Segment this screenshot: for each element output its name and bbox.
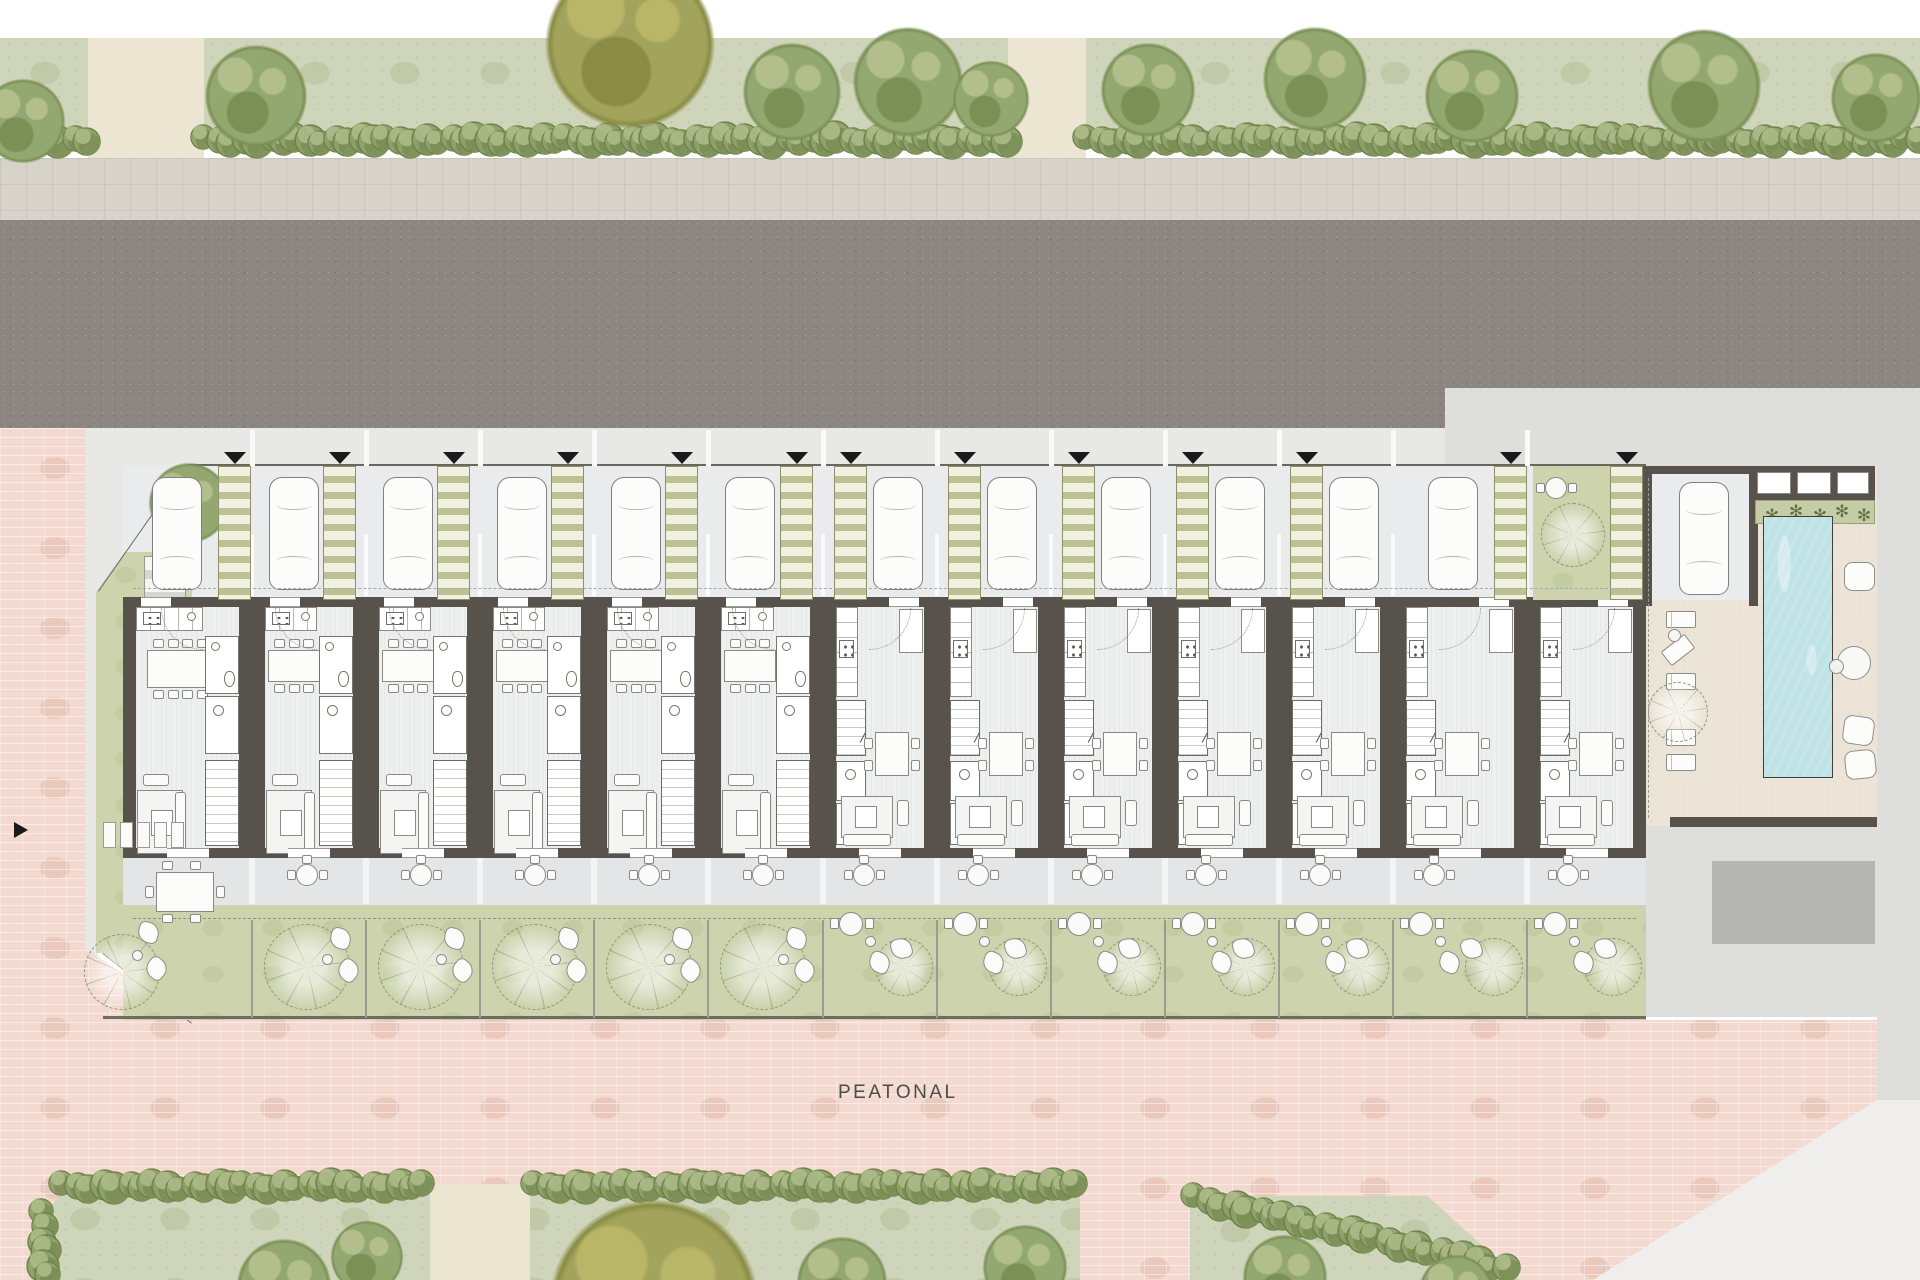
street-tree: [1830, 52, 1920, 144]
armchair: [1353, 800, 1365, 826]
sofa: [843, 834, 891, 846]
sofa: [760, 792, 771, 852]
entry-ladder: [551, 466, 584, 600]
ottoman: [664, 954, 675, 965]
chair: [433, 870, 442, 880]
dining-table: [1579, 732, 1613, 776]
sofa: [304, 792, 315, 852]
stairs-diagonal: [1564, 700, 1570, 743]
bistro-table: [1309, 864, 1331, 886]
stepping-stone: [154, 822, 167, 848]
chair: [153, 639, 164, 648]
chair: [645, 684, 656, 693]
car-rear-window: [618, 556, 654, 566]
chair: [1058, 918, 1067, 929]
ottoman: [1321, 936, 1332, 947]
bay-post: [706, 534, 710, 596]
fridge: [1489, 609, 1513, 653]
chair: [759, 684, 770, 693]
chair: [1093, 918, 1102, 929]
ottoman: [436, 954, 447, 965]
stepping-stone: [171, 822, 184, 848]
shower-room: [1406, 761, 1436, 801]
shower-head: [1549, 769, 1560, 780]
front-window: [1117, 597, 1147, 607]
chair: [1429, 855, 1439, 864]
pool-tree: [1648, 682, 1708, 742]
chair: [730, 684, 741, 693]
entry-marker: [329, 452, 351, 464]
entry-ladder: [1062, 466, 1095, 600]
garden-divider: [1392, 920, 1394, 1018]
garden-divider: [365, 920, 367, 1018]
skylight: [1837, 472, 1869, 494]
bathroom: [661, 636, 695, 694]
shower-head: [959, 769, 970, 780]
chair: [1536, 483, 1545, 493]
stairs-diagonal: [1088, 700, 1094, 743]
street-tree: [1100, 42, 1196, 138]
lounge-pillow: [1844, 748, 1878, 780]
chair: [644, 855, 654, 864]
chair: [274, 639, 285, 648]
chair: [190, 861, 201, 870]
sofa: [532, 792, 543, 852]
entry-marker: [671, 452, 693, 464]
toilet: [452, 671, 463, 687]
chair: [416, 855, 426, 864]
car-rear-window: [732, 556, 768, 566]
chair: [1481, 760, 1490, 771]
patio-divider: [249, 858, 255, 904]
entry-ladder: [665, 466, 698, 600]
chair: [830, 918, 839, 929]
coffee-table: [1311, 806, 1333, 828]
bathroom: [776, 636, 810, 694]
chair: [1104, 870, 1113, 880]
chair: [958, 870, 967, 880]
front-window: [498, 597, 528, 607]
chair: [1569, 918, 1578, 929]
bathroom: [547, 636, 581, 694]
chair: [1253, 738, 1262, 749]
stairs: [776, 760, 810, 846]
stairs: [1178, 700, 1208, 756]
armchair: [143, 774, 169, 786]
car-windshield: [618, 500, 654, 510]
chair: [1206, 738, 1215, 749]
parked-car: [497, 477, 547, 590]
chair: [417, 684, 428, 693]
palm-plant: ✻: [1833, 503, 1851, 521]
bistro-table: [853, 864, 875, 886]
chair: [1434, 738, 1443, 749]
chair: [1534, 918, 1543, 929]
chair: [1092, 760, 1101, 771]
front-window: [1003, 597, 1033, 607]
chair: [1481, 738, 1490, 749]
chair: [911, 760, 920, 771]
toilet: [338, 671, 349, 687]
patio-divider: [1276, 858, 1282, 904]
shower-head: [1301, 769, 1312, 780]
car-rear-window: [1222, 556, 1258, 566]
chair: [990, 870, 999, 880]
stove: [953, 640, 968, 658]
dining-table: [610, 650, 662, 682]
parked-car: [1101, 477, 1151, 590]
stairs-diagonal: [1430, 700, 1436, 743]
parked-car: [1428, 477, 1478, 590]
chair: [502, 684, 513, 693]
shower-head: [784, 705, 795, 716]
car-rear-window: [880, 556, 916, 566]
bay-post: [1277, 534, 1281, 596]
garden-divider: [1278, 920, 1280, 1018]
bay-post: [364, 534, 368, 596]
chair: [1186, 870, 1195, 880]
chair: [1025, 760, 1034, 771]
chair: [844, 870, 853, 880]
stairs: [1064, 700, 1094, 756]
chair: [616, 639, 627, 648]
chair: [1092, 738, 1101, 749]
coffee-table: [969, 806, 991, 828]
bistro-table: [524, 864, 546, 886]
front-window: [612, 597, 642, 607]
chair: [190, 914, 201, 923]
garden-table: [1543, 912, 1567, 936]
chair: [1201, 855, 1211, 864]
lower-park-path: [430, 1184, 530, 1280]
entry-ladder: [218, 466, 251, 600]
street-tree: [1262, 26, 1368, 132]
dining-table: [875, 732, 909, 776]
car-rear-window: [994, 556, 1030, 566]
bistro-table: [1423, 864, 1445, 886]
park-hedge: [1059, 1169, 1088, 1198]
pool-boundary-dash: [1648, 478, 1649, 818]
stairs: [547, 760, 581, 846]
shower-room: [433, 696, 467, 754]
shower-head: [845, 769, 856, 780]
chair: [743, 870, 752, 880]
shower-head: [441, 705, 452, 716]
chair: [775, 870, 784, 880]
chair: [1025, 738, 1034, 749]
outdoor-table: [156, 872, 214, 912]
curb-post: [1049, 430, 1054, 466]
car-windshield: [276, 500, 312, 510]
chair: [864, 738, 873, 749]
coffee-table: [394, 810, 416, 836]
shower-room: [661, 696, 695, 754]
car-rear-window: [504, 556, 540, 566]
coffee-table: [736, 810, 758, 836]
chair: [864, 760, 873, 771]
chair: [274, 684, 285, 693]
curb-post: [706, 430, 711, 466]
swimming-pool: [1763, 516, 1833, 778]
coffee-table: [855, 806, 877, 828]
entry-marker: [1182, 452, 1204, 464]
entry-marker: [1068, 452, 1090, 464]
bay-post: [592, 534, 596, 596]
chair: [1615, 738, 1624, 749]
toilet: [795, 671, 806, 687]
pool-small-seat: [1829, 659, 1844, 674]
entry-marker: [786, 452, 808, 464]
street-tree: [742, 42, 842, 142]
curb-post: [250, 430, 255, 466]
car-windshield: [1336, 500, 1372, 510]
entry-marker: [1296, 452, 1318, 464]
entry-marker: [224, 452, 246, 464]
sun-lounger: [1666, 754, 1696, 771]
plaza-entry-arrow: [14, 822, 28, 838]
dining-table: [1445, 732, 1479, 776]
garden-divider: [936, 920, 938, 1018]
chair: [287, 870, 296, 880]
sink: [325, 642, 334, 651]
sink: [667, 642, 676, 651]
chair: [1446, 870, 1455, 880]
chair: [911, 738, 920, 749]
bathroom: [433, 636, 467, 694]
entry-ladder: [1610, 466, 1643, 600]
bistro-table: [410, 864, 432, 886]
chair: [530, 855, 540, 864]
shower-room: [1540, 761, 1570, 801]
peatonal-street-label: PEATONAL: [838, 1082, 958, 1105]
bistro-table: [1081, 864, 1103, 886]
parked-car: [1679, 482, 1729, 595]
chair: [1321, 918, 1330, 929]
coffee-table: [1197, 806, 1219, 828]
curb-post: [364, 430, 369, 466]
patio-divider: [1162, 858, 1168, 904]
stairs-diagonal: [860, 700, 866, 743]
ottoman: [550, 954, 561, 965]
park-hedge: [34, 1261, 61, 1280]
parked-car: [987, 477, 1037, 590]
shower-head: [669, 705, 680, 716]
sofa: [1413, 834, 1461, 846]
ottoman: [979, 936, 990, 947]
courtyard-tree: [1541, 503, 1605, 567]
parked-car: [873, 477, 923, 590]
rear-window: [167, 848, 209, 858]
coffee-table: [280, 810, 302, 836]
garden-table: [1295, 912, 1319, 936]
armchair: [1601, 800, 1613, 826]
armchair: [728, 774, 754, 786]
garden-divider: [707, 920, 709, 1018]
chair: [388, 684, 399, 693]
parked-car: [152, 477, 202, 590]
bistro-table: [638, 864, 660, 886]
car-rear-window: [1336, 556, 1372, 566]
parked-car: [611, 477, 661, 590]
chair: [876, 870, 885, 880]
front-window: [141, 597, 171, 607]
curb-post: [821, 430, 826, 466]
coffee-table: [1425, 806, 1447, 828]
chair: [1615, 760, 1624, 771]
car-rear-window: [276, 556, 312, 566]
front-window: [726, 597, 756, 607]
chair: [1253, 760, 1262, 771]
front-window: [1345, 597, 1375, 607]
armchair: [272, 774, 298, 786]
patio-divider: [1048, 858, 1054, 904]
chair: [302, 855, 312, 864]
stepping-stone: [137, 822, 150, 848]
chair: [616, 684, 627, 693]
ottoman: [865, 936, 876, 947]
rear-window: [1439, 848, 1481, 858]
chair: [1300, 870, 1309, 880]
chair: [1207, 918, 1216, 929]
armchair: [1011, 800, 1023, 826]
chair: [1414, 870, 1423, 880]
garden-divider: [593, 920, 595, 1018]
stepping-stone: [120, 822, 133, 848]
chair: [1435, 918, 1444, 929]
chair: [758, 855, 768, 864]
parking-block: [1712, 861, 1875, 944]
ottoman: [1435, 936, 1446, 947]
shower-head: [1073, 769, 1084, 780]
garden-table: [1067, 912, 1091, 936]
chair: [1563, 855, 1573, 864]
shower-head: [327, 705, 338, 716]
street-tree: [852, 26, 964, 138]
shower-room: [776, 696, 810, 754]
patio-divider: [705, 858, 711, 904]
curb-post: [1277, 430, 1282, 466]
front-window: [1231, 597, 1261, 607]
bistro-table: [1195, 864, 1217, 886]
shower-room: [836, 761, 866, 801]
chair: [1568, 760, 1577, 771]
car-rear-window: [1686, 561, 1722, 571]
stairs: [1292, 700, 1322, 756]
garden-divider: [822, 920, 824, 1018]
chair: [162, 861, 173, 870]
sofa: [1185, 834, 1233, 846]
stairs: [205, 760, 239, 846]
chair: [403, 684, 414, 693]
stove: [143, 612, 161, 625]
lounge-pillow: [1841, 714, 1876, 747]
shower-room: [1292, 761, 1322, 801]
armchair: [1239, 800, 1251, 826]
bistro-table: [752, 864, 774, 886]
sink: [782, 642, 791, 651]
dining-table: [989, 732, 1023, 776]
shower-head: [1415, 769, 1426, 780]
armchair: [614, 774, 640, 786]
ottoman: [1569, 936, 1580, 947]
bistro-table: [296, 864, 318, 886]
car-windshield: [880, 500, 916, 510]
entry-ladder: [780, 466, 813, 600]
front-window: [270, 597, 300, 607]
shower-head: [555, 705, 566, 716]
chair: [1087, 855, 1097, 864]
chair: [502, 639, 513, 648]
toilet: [566, 671, 577, 687]
chair: [517, 684, 528, 693]
bistro-table: [1557, 864, 1579, 886]
entry-ladder: [1176, 466, 1209, 600]
chair: [865, 918, 874, 929]
garden-table: [839, 912, 863, 936]
stove: [1543, 640, 1558, 658]
entry-marker: [1500, 452, 1522, 464]
dining-table: [496, 650, 548, 682]
armchair: [1125, 800, 1137, 826]
entry-marker: [443, 452, 465, 464]
ottoman: [1093, 936, 1104, 947]
stairs: [319, 760, 353, 846]
street-tree: [952, 60, 1030, 138]
chair: [303, 684, 314, 693]
car-windshield: [994, 500, 1030, 510]
parked-car: [269, 477, 319, 590]
chair: [1315, 855, 1325, 864]
chair: [1400, 918, 1409, 929]
chair: [515, 870, 524, 880]
chair: [1367, 738, 1376, 749]
garden-table: [953, 912, 977, 936]
shower-room: [547, 696, 581, 754]
stairs: [433, 760, 467, 846]
chair: [1218, 870, 1227, 880]
shower-room: [1064, 761, 1094, 801]
chair: [1139, 760, 1148, 771]
garden-divider: [479, 920, 481, 1018]
curb-post: [935, 430, 940, 466]
chair: [1320, 738, 1329, 749]
bistro-table: [967, 864, 989, 886]
chair: [1206, 760, 1215, 771]
stairs: [950, 700, 980, 756]
sofa: [646, 792, 657, 852]
parked-car: [725, 477, 775, 590]
garden-table: [1181, 912, 1205, 936]
shower-head: [213, 705, 224, 716]
curb-post: [1391, 430, 1396, 466]
patio-divider: [820, 858, 826, 904]
site-front-line: [188, 464, 1646, 466]
shower-room: [950, 761, 980, 801]
palm-plant: ✻: [1855, 507, 1873, 525]
stairs: [1406, 700, 1436, 756]
street-hedge: [72, 127, 101, 156]
dining-table: [724, 650, 776, 682]
lounge-pillow: [1844, 562, 1875, 591]
sink: [211, 642, 220, 651]
chair: [168, 690, 179, 699]
chair: [1332, 870, 1341, 880]
curb-post: [1525, 430, 1530, 466]
sun-lounger: [1666, 611, 1696, 628]
park-path-0: [88, 38, 204, 160]
curb-strip: [85, 428, 1445, 468]
street-tree: [204, 44, 308, 148]
